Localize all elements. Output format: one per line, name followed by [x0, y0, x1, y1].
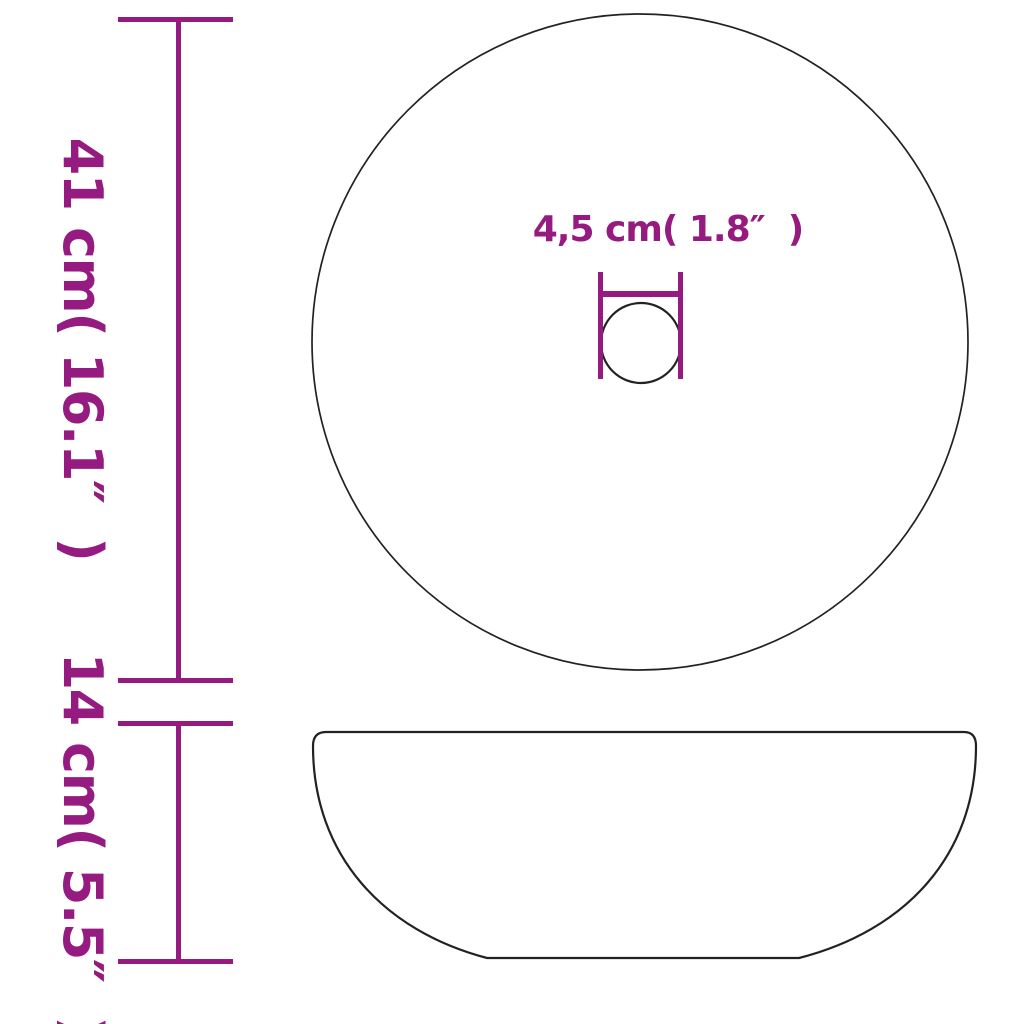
height-dimension-line: [176, 721, 181, 964]
diameter-dimension-label: 41 cm( 16.1″ ): [55, 138, 109, 561]
drain-dimension-extension-left: [598, 272, 603, 379]
drain-dimension-label: 4,5 cm( 1.8″ ): [533, 212, 804, 248]
drain-dimension-extension-right: [678, 272, 683, 379]
basin-side-view-outline: [313, 732, 976, 958]
height-dimension-label: 14 cm( 5.5″ ): [55, 653, 109, 1024]
height-dimension-tick-bottom: [118, 959, 233, 964]
diameter-dimension-tick-bottom: [118, 678, 233, 683]
dimension-diagram: 41 cm( 16.1″ ) 14 cm( 5.5″ ) 4,5 cm( 1.8…: [0, 0, 1024, 1024]
drain-hole-circle: [601, 303, 681, 383]
diameter-dimension-line: [176, 17, 181, 683]
diagram-shapes: [0, 0, 1024, 1024]
drain-dimension-bar: [598, 291, 683, 297]
